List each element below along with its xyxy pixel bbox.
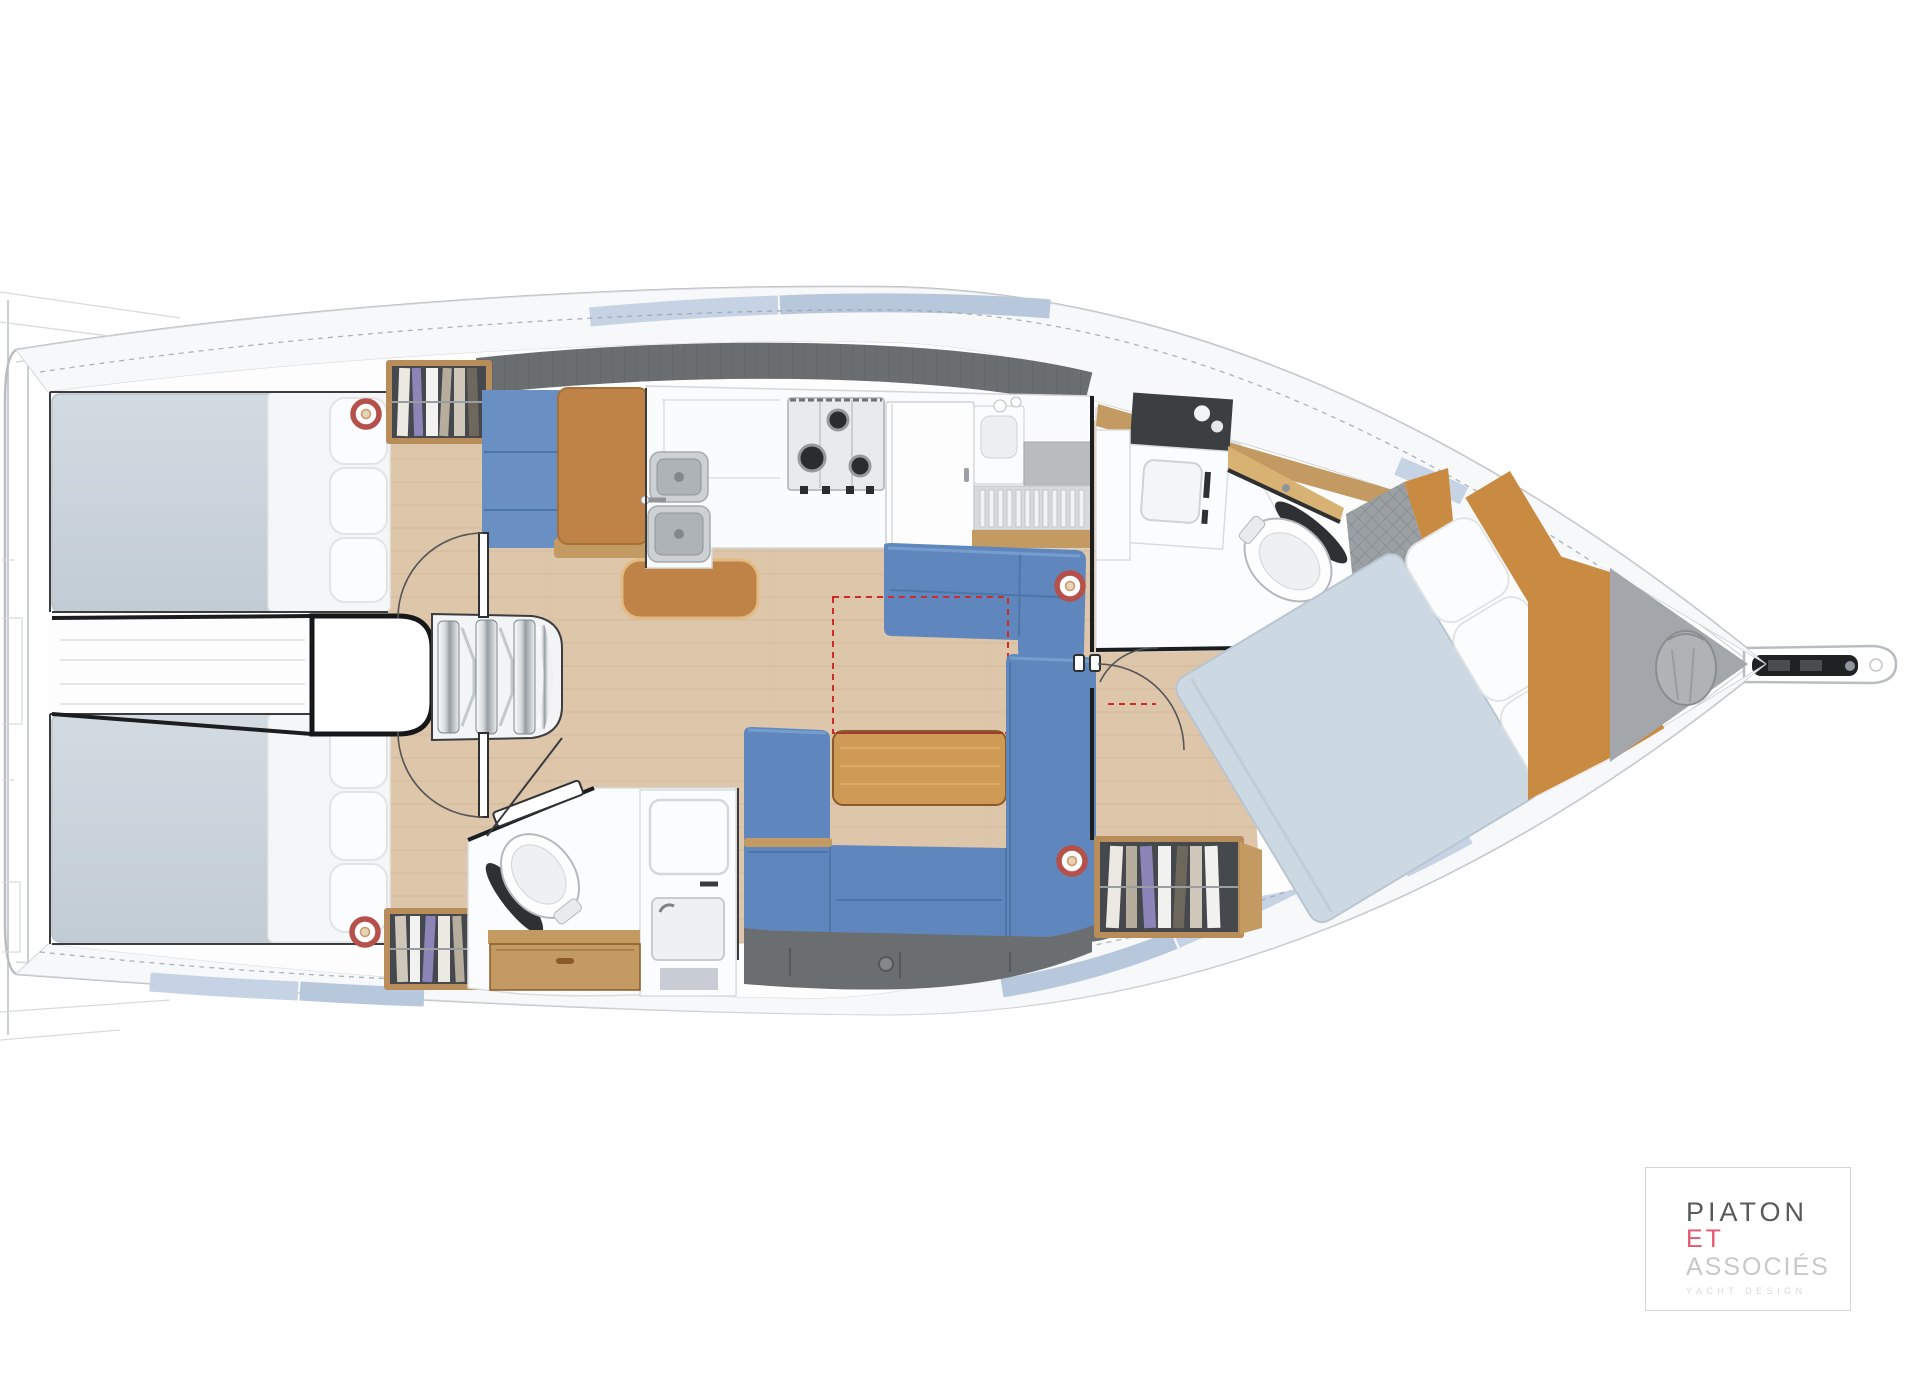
forward-head-vanity — [1123, 393, 1233, 550]
logo-tagline: YACHT DESIGN — [1686, 1286, 1850, 1296]
sail-bag — [1656, 631, 1716, 705]
logo-name-line3: ASSOCIÉS — [1686, 1254, 1850, 1282]
logo-name-line1: PIATON — [1686, 1198, 1850, 1226]
speaker-icon — [1057, 573, 1083, 599]
companionway-steps — [432, 614, 562, 740]
speaker-icon — [352, 919, 378, 945]
nav-seat — [482, 390, 560, 548]
logo-name-line2: ET — [1686, 1226, 1850, 1254]
bowsprit — [1744, 646, 1896, 683]
galley — [641, 386, 1092, 568]
aft-head-shower — [640, 790, 736, 996]
speaker-icon — [353, 401, 379, 427]
yacht-floorplan-page: PIATON ET ASSOCIÉS YACHT DESIGN — [0, 0, 1920, 1375]
chart-table — [558, 388, 648, 544]
wardrobe-port-aft — [386, 360, 492, 444]
engine-box — [312, 616, 432, 734]
forward-head-sink — [1140, 460, 1202, 524]
designer-logo: PIATON ET ASSOCIÉS YACHT DESIGN — [1645, 1167, 1851, 1311]
galley-fridge — [886, 402, 974, 548]
berth-pillows — [330, 720, 387, 932]
aft-head — [468, 780, 738, 996]
aft-head-drawers — [488, 930, 640, 990]
yacht-floorplan-drawing — [0, 0, 1920, 1375]
forward-head-side-cabinet — [1096, 430, 1130, 560]
bow-wood-panel — [1528, 546, 1610, 800]
berth-pillows — [330, 398, 387, 602]
wardrobe-forward — [1094, 836, 1262, 938]
galley-stove — [788, 398, 884, 494]
speaker-icon — [1059, 848, 1085, 874]
step-treads — [438, 620, 548, 734]
saloon-table — [833, 731, 1006, 805]
